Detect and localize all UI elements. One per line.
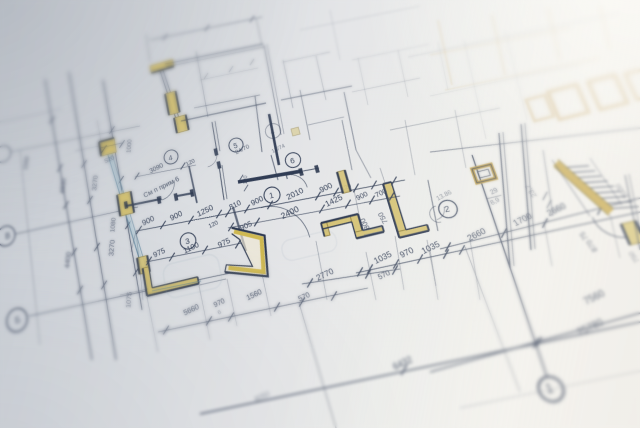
- svg-text:1080: 1080: [109, 217, 118, 232]
- svg-text:1075: 1075: [125, 292, 134, 309]
- svg-text:2770: 2770: [315, 268, 335, 284]
- svg-text:В: В: [5, 232, 11, 242]
- svg-text:975: 975: [217, 237, 232, 250]
- svg-text:25780: 25780: [576, 318, 608, 339]
- svg-text:1560: 1560: [245, 288, 264, 303]
- svg-text:2010: 2010: [286, 187, 306, 202]
- svg-text:1000: 1000: [126, 139, 134, 153]
- svg-text:3: 3: [185, 238, 191, 247]
- svg-text:120: 120: [185, 157, 197, 167]
- svg-text:120: 120: [207, 219, 219, 230]
- svg-text:1035: 1035: [373, 251, 394, 267]
- svg-text:905: 905: [239, 220, 254, 233]
- svg-text:2: 2: [444, 205, 453, 215]
- svg-text:3270: 3270: [108, 240, 117, 256]
- svg-text:970: 970: [399, 246, 416, 260]
- svg-text:750: 750: [377, 210, 391, 225]
- svg-text:1560: 1560: [22, 156, 31, 170]
- svg-text:8050: 8050: [253, 389, 272, 405]
- svg-text:75: 75: [577, 230, 590, 241]
- svg-text:13.86: 13.86: [435, 188, 454, 202]
- svg-text:3090: 3090: [149, 162, 165, 176]
- svg-text:970: 970: [212, 297, 226, 310]
- svg-text:4830: 4830: [59, 178, 68, 193]
- svg-text:7560: 7560: [582, 289, 609, 308]
- svg-text:4400: 4400: [64, 252, 73, 268]
- svg-text:15/74: 15/74: [270, 142, 286, 155]
- svg-text:2660: 2660: [466, 227, 488, 244]
- svg-text:1: 1: [269, 192, 275, 201]
- svg-text:2400: 2400: [280, 205, 302, 221]
- svg-text:Б: Б: [15, 315, 22, 326]
- svg-text:750: 750: [626, 249, 640, 264]
- svg-text:29: 29: [488, 186, 500, 196]
- svg-text:810: 810: [228, 199, 242, 212]
- svg-text:570: 570: [297, 291, 312, 305]
- svg-text:4: 4: [270, 129, 276, 138]
- svg-text:900: 900: [169, 210, 184, 223]
- svg-text:1700: 1700: [512, 212, 535, 229]
- svg-text:900: 900: [319, 182, 335, 195]
- svg-text:1035: 1035: [420, 240, 442, 256]
- svg-text:900: 900: [250, 195, 265, 208]
- svg-text:5660: 5660: [182, 303, 200, 318]
- svg-text:8,9: 8,9: [489, 195, 502, 206]
- svg-text:3270: 3270: [91, 175, 100, 190]
- svg-text:4: 4: [168, 155, 173, 163]
- svg-text:900: 900: [355, 190, 370, 203]
- svg-text:6: 6: [290, 157, 296, 166]
- svg-text:900: 900: [141, 215, 155, 228]
- svg-text:6: 6: [216, 307, 223, 316]
